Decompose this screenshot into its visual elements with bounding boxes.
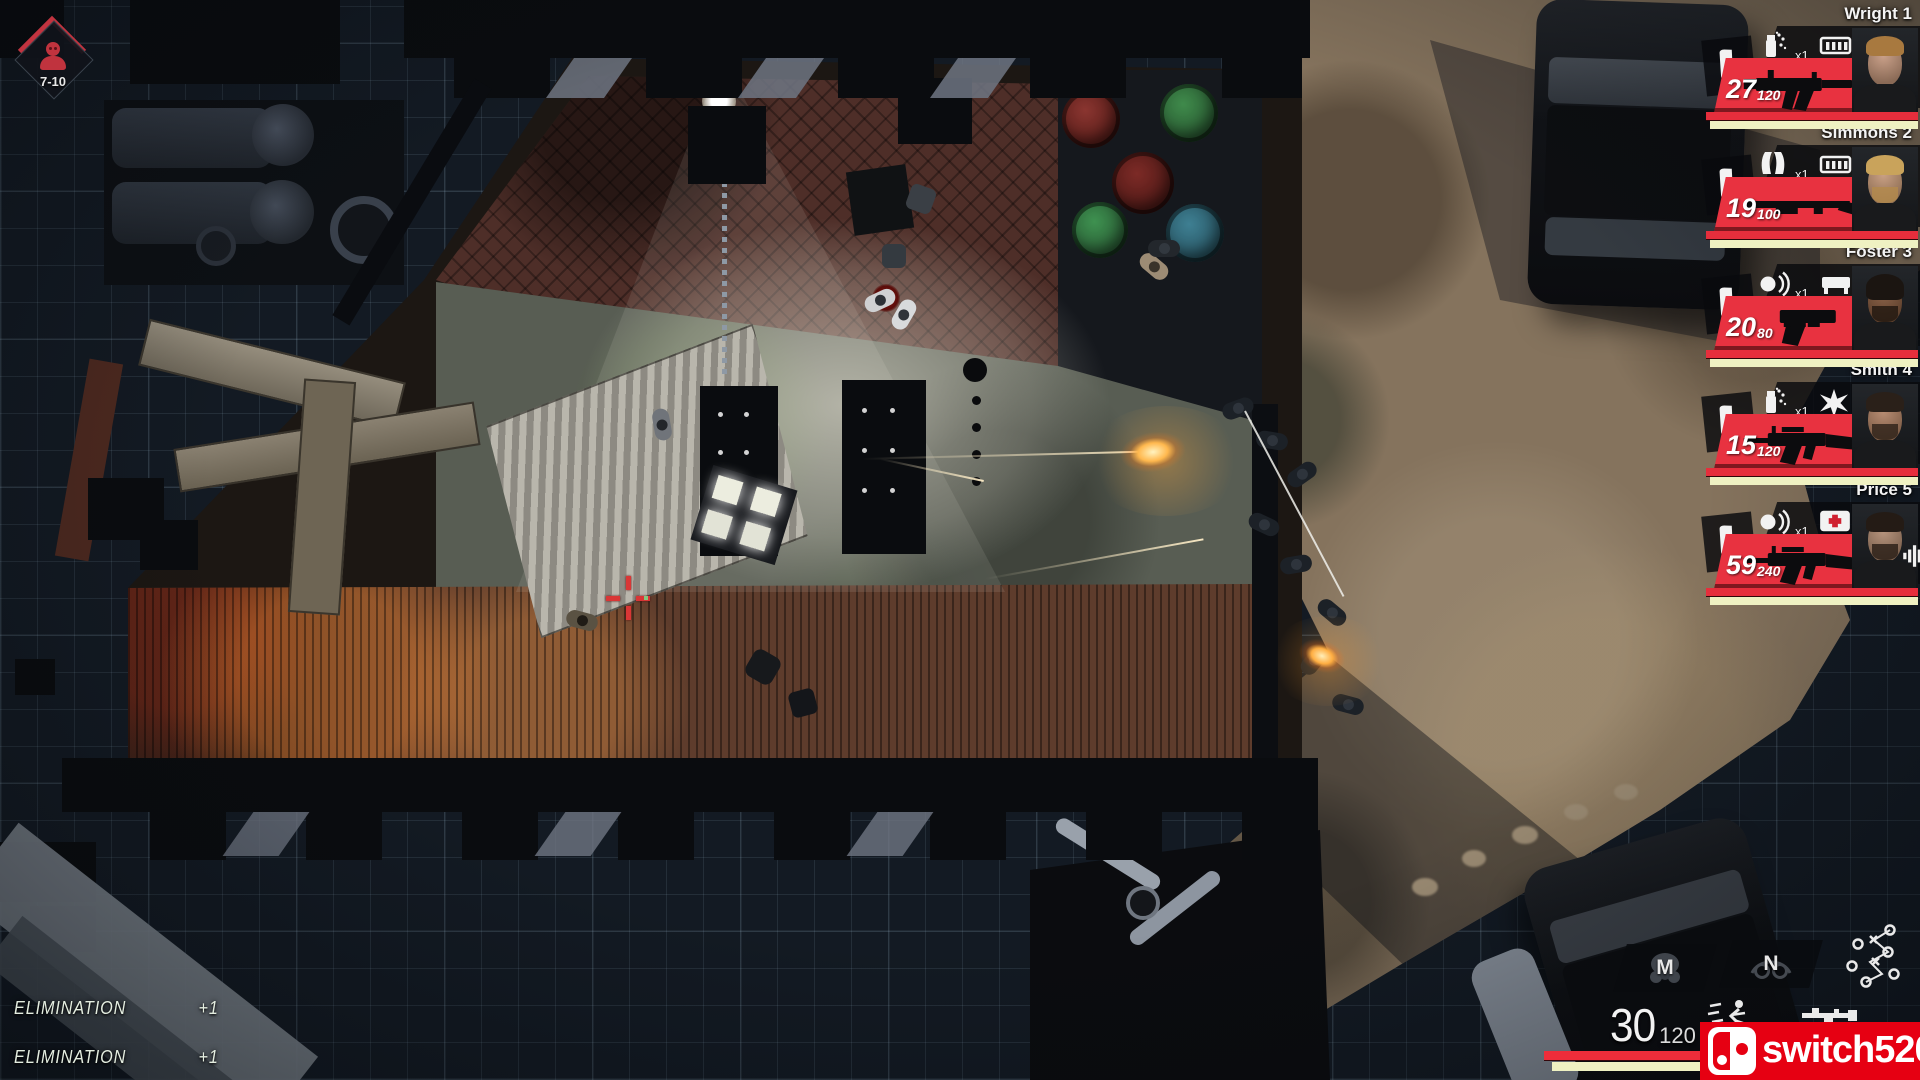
squad-panel-smith[interactable]: Smith 4 x1 x1 15120 xyxy=(1700,360,1920,482)
ammo-magazine-icon xyxy=(1819,33,1853,59)
enemy-count-label: 7-10 xyxy=(28,74,78,89)
stretcher-icon xyxy=(1819,271,1853,297)
stamina-bar xyxy=(1710,597,1918,605)
member-portrait xyxy=(1852,266,1918,360)
member-portrait xyxy=(1852,147,1918,241)
watermark-text: switch520 xyxy=(1762,1029,1920,1072)
health-bar xyxy=(1706,231,1918,239)
ammo-count: 15120 xyxy=(1726,430,1779,461)
ammo-count: 59240 xyxy=(1726,550,1779,581)
vignette xyxy=(0,0,1920,1080)
ammo-reserve-count: 120 xyxy=(1659,1023,1696,1048)
stamina-bar xyxy=(1710,121,1918,129)
ammo-magazine-count: 30 xyxy=(1610,998,1655,1052)
member-name: Wright 1 xyxy=(1844,4,1912,24)
gas-mask-button[interactable]: M xyxy=(1613,944,1717,992)
member-portrait xyxy=(1852,384,1918,478)
health-bar xyxy=(1706,112,1918,120)
watermark-banner: switch520 xyxy=(1700,1022,1920,1080)
night-vision-button[interactable]: N xyxy=(1719,940,1823,988)
tactics-web-icon[interactable] xyxy=(1842,924,1908,988)
stamina-bar xyxy=(1710,477,1918,485)
enemy-counter-badge: 7-10 xyxy=(10,6,94,98)
flash-ball-icon xyxy=(1758,507,1790,535)
kill-feed-row: ELIMINATION +1 xyxy=(14,998,248,1019)
ammo-count: 19100 xyxy=(1726,193,1779,224)
ammo-magazine-icon xyxy=(1819,152,1853,178)
ammo-count: 2080 xyxy=(1726,312,1772,343)
member-portrait xyxy=(1852,28,1918,122)
ammo-count: 27120 xyxy=(1726,74,1779,105)
stamina-bar xyxy=(1710,359,1918,367)
stamina-bar xyxy=(1710,240,1918,248)
armor-vest-icon xyxy=(1758,150,1788,178)
health-bar xyxy=(1706,588,1918,596)
voice-chat-icon xyxy=(1902,542,1920,570)
game-screen: 7-10 Wright 1 x1 x1 xyxy=(0,0,1920,1080)
kill-feed-value: +1 xyxy=(199,998,219,1019)
kill-feed-row: ELIMINATION +1 xyxy=(14,1047,248,1068)
button-key-label: M xyxy=(1656,956,1674,980)
squad-panel-price[interactable]: Price 5 x1 x1 59240 xyxy=(1700,480,1920,602)
health-bar xyxy=(1706,468,1918,476)
enemy-icon xyxy=(40,42,66,72)
kill-feed-label: ELIMINATION xyxy=(14,1047,126,1067)
squad-panel-simmons[interactable]: Simmons 2 x1 x1 19100 xyxy=(1700,123,1920,245)
squad-panel-foster[interactable]: Foster 3 x1 x1 2080 xyxy=(1700,242,1920,364)
kill-feed-value: +1 xyxy=(199,1047,219,1068)
flash-ball-icon xyxy=(1758,269,1790,297)
squad-panel-wright[interactable]: Wright 1 x1 x1 27120 xyxy=(1700,4,1920,126)
medkit-icon xyxy=(1819,509,1851,533)
flash-icon xyxy=(1819,389,1849,417)
kill-feed-label: ELIMINATION xyxy=(14,998,126,1018)
switch-logo-icon xyxy=(1708,1027,1756,1075)
button-key-label: N xyxy=(1763,952,1778,976)
health-bar xyxy=(1706,350,1918,358)
